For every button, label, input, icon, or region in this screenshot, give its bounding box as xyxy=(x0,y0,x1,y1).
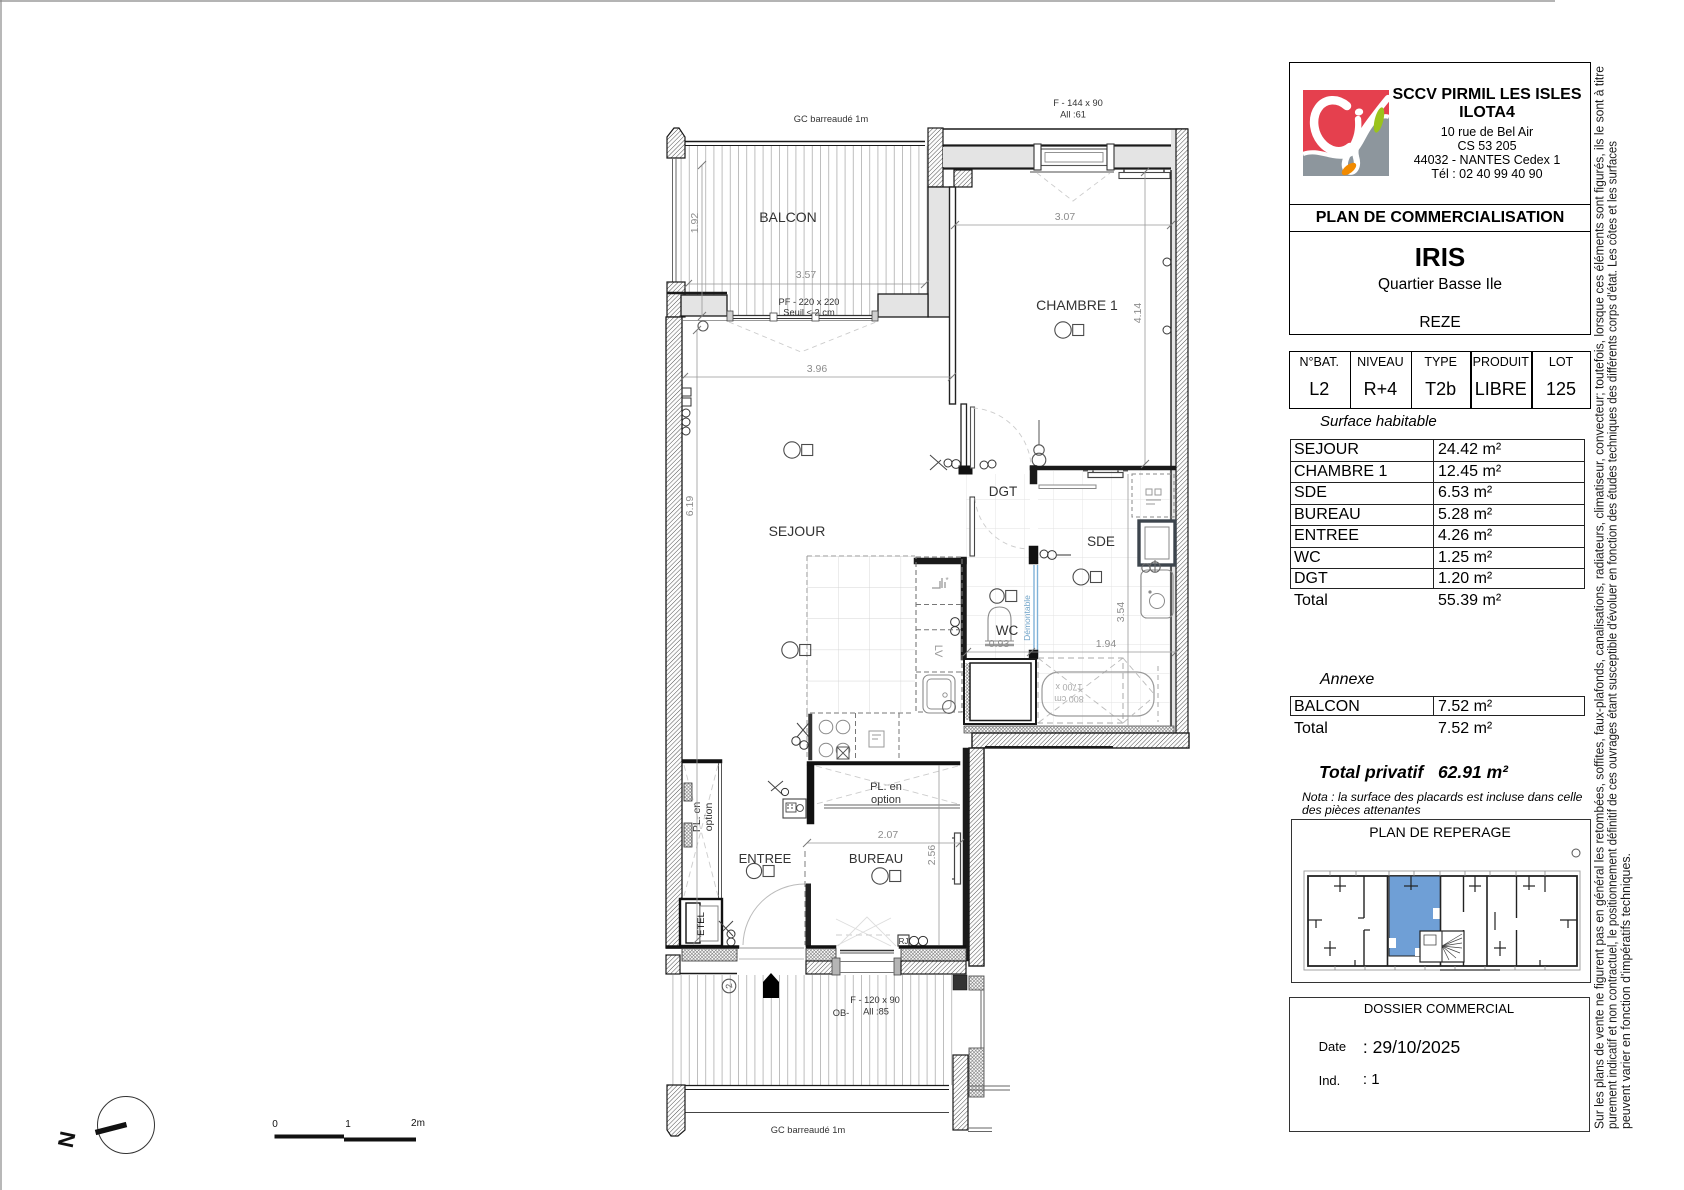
svg-text:Démontable: Démontable xyxy=(1022,595,1032,641)
svg-text:ETEL: ETEL xyxy=(696,912,707,936)
svg-text:CHAMBRE 1: CHAMBRE 1 xyxy=(1036,297,1118,313)
svg-text:Seuil < 2 cm: Seuil < 2 cm xyxy=(783,308,835,318)
svg-text:peuvent varier en fonction d': peuvent varier en fonction d'impératifs … xyxy=(1619,853,1633,1129)
svg-text:BUREAU: BUREAU xyxy=(849,851,903,866)
svg-text:F - 144 x 90: F - 144 x 90 xyxy=(1053,98,1103,108)
svg-text:OB-: OB- xyxy=(833,1008,850,1018)
svg-text:WC: WC xyxy=(996,623,1019,638)
svg-text:3.54: 3.54 xyxy=(1115,602,1127,623)
svg-text:0.93: 0.93 xyxy=(989,638,1010,650)
svg-text:BALCON: BALCON xyxy=(759,209,817,225)
svg-text:1: 1 xyxy=(345,1119,351,1130)
svg-text:GC barreaudé 1m: GC barreaudé 1m xyxy=(771,1125,846,1135)
svg-text:All :61: All :61 xyxy=(1060,110,1086,120)
svg-text:DGT: DGT xyxy=(989,484,1018,499)
svg-text:1.94: 1.94 xyxy=(1096,638,1117,650)
svg-text:SDE: SDE xyxy=(1087,534,1115,549)
svg-text:PF - 220 x 220: PF - 220 x 220 xyxy=(779,297,840,307)
svg-text:6.19: 6.19 xyxy=(684,496,696,517)
svg-text:800 cm: 800 cm xyxy=(1054,694,1084,704)
svg-text:3.96: 3.96 xyxy=(807,363,828,375)
svg-text:*: * xyxy=(945,576,948,585)
svg-text:purement indicatif et non cont: purement indicatif et non contractuel, l… xyxy=(1606,141,1620,1129)
svg-text:LV: LV xyxy=(932,645,944,658)
svg-text:2m: 2m xyxy=(411,1118,425,1129)
svg-text:option: option xyxy=(871,794,901,806)
svg-text:3.57: 3.57 xyxy=(796,269,817,281)
svg-text:PL. en: PL. en xyxy=(870,781,902,793)
svg-text:2.56: 2.56 xyxy=(926,845,938,866)
svg-text:3.07: 3.07 xyxy=(1055,211,1076,223)
svg-text:GC barreaudé 1m: GC barreaudé 1m xyxy=(794,114,869,124)
svg-text:4.14: 4.14 xyxy=(1132,303,1144,324)
svg-text:All :85: All :85 xyxy=(863,1007,889,1017)
svg-text:SEJOUR: SEJOUR xyxy=(769,523,826,539)
svg-text:0: 0 xyxy=(272,1119,278,1130)
svg-text:ENTREE: ENTREE xyxy=(739,851,792,866)
svg-text:Sur les plans de vente ne figu: Sur les plans de vente ne figurent pas e… xyxy=(1593,66,1607,1129)
svg-text:F - 120 x 90: F - 120 x 90 xyxy=(850,995,900,1005)
svg-text:option: option xyxy=(703,803,715,832)
svg-text:2.07: 2.07 xyxy=(878,829,899,841)
svg-text:1.92: 1.92 xyxy=(689,213,701,234)
svg-text:RJ: RJ xyxy=(899,937,909,946)
svg-text:N: N xyxy=(53,1129,81,1150)
svg-text:1700 x: 1700 x xyxy=(1055,682,1083,692)
